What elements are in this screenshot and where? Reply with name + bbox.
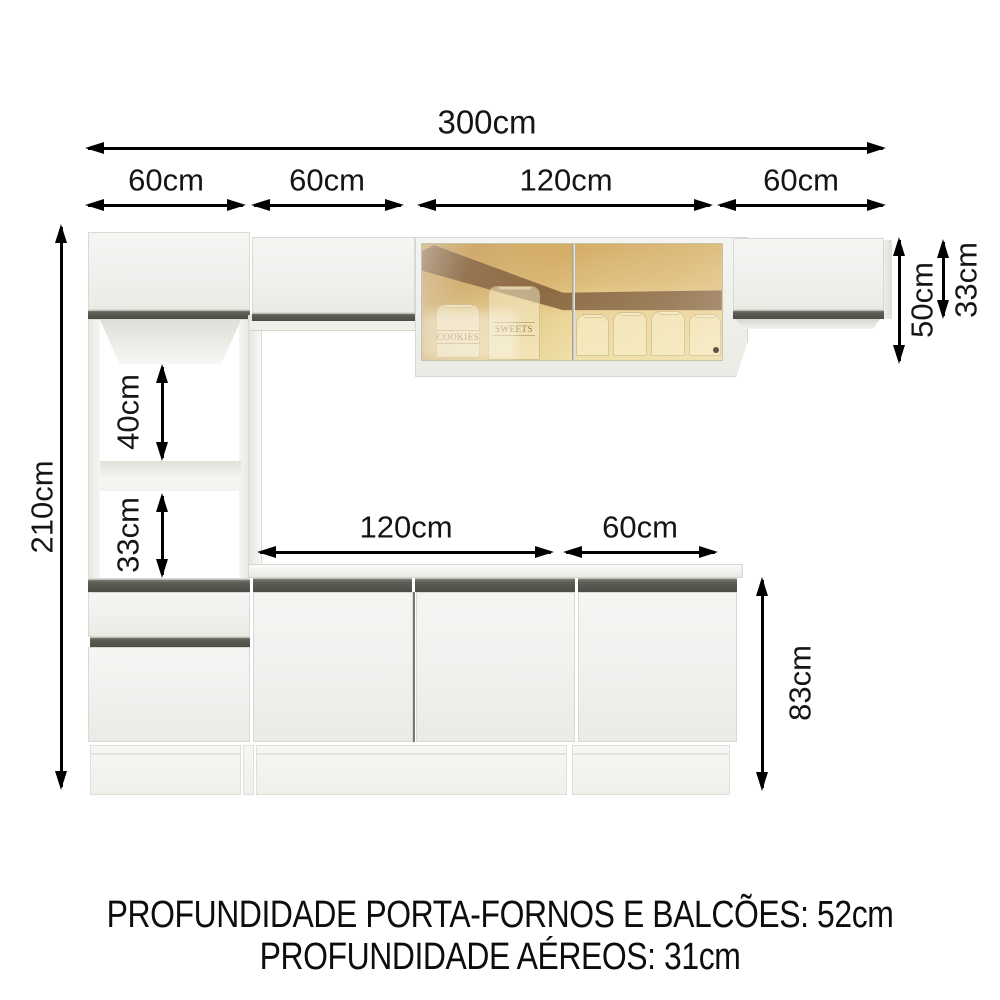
dim-label-base-height: 83cm bbox=[785, 645, 816, 721]
aerial-cabinet-2-door bbox=[252, 237, 415, 313]
dim-label-niche-upper: 40cm bbox=[112, 370, 145, 454]
base-door-seam bbox=[413, 592, 415, 742]
niche-side-panel bbox=[248, 315, 262, 578]
base-cabinet-strip-1 bbox=[253, 578, 412, 592]
dim-arrow-niche-lower bbox=[154, 493, 170, 578]
dim-label-top-seg-4: 60cm bbox=[763, 165, 839, 196]
base-cabinet-door-2 bbox=[416, 592, 575, 742]
tall-cabinet-bottom-door bbox=[88, 647, 250, 742]
dim-arrow-top-seg-2 bbox=[251, 197, 404, 213]
dim-arrow-base-height bbox=[754, 577, 770, 791]
dim-label-counter-seg-1: 120cm bbox=[359, 512, 452, 543]
base-cabinet-door-1 bbox=[253, 592, 413, 742]
tall-cabinet-kick-plate bbox=[90, 745, 241, 795]
glass-door-knob bbox=[713, 347, 719, 353]
dim-arrow-niche-upper bbox=[154, 364, 170, 461]
kitchen-dimension-diagram: COOKIES SWEETS 300cm 6 bbox=[0, 0, 1000, 1000]
dim-label-total-width: 300cm bbox=[437, 106, 536, 139]
dim-label-top-seg-3: 120cm bbox=[519, 165, 612, 196]
dim-arrow-total-width bbox=[85, 140, 886, 156]
glass-door-divider bbox=[572, 244, 575, 360]
dim-arrow-top-seg-4 bbox=[717, 197, 886, 213]
kick-corner-post bbox=[243, 745, 254, 795]
dim-arrow-counter-seg-1 bbox=[257, 544, 554, 560]
tall-cabinet-top-door bbox=[88, 232, 250, 310]
base-kick-plate-right bbox=[572, 745, 730, 795]
hutch-shelf bbox=[100, 461, 241, 491]
aerial-cabinet-3-bottom-shadow bbox=[736, 319, 880, 329]
dim-label-total-height: 210cm bbox=[27, 460, 58, 553]
aerial-cabinet-2-handle-strip bbox=[252, 313, 415, 321]
tall-cabinet-drawer bbox=[88, 592, 250, 637]
dim-label-top-seg-1: 60cm bbox=[128, 165, 204, 196]
base-cabinet-strip-2 bbox=[415, 578, 575, 592]
countertop bbox=[248, 564, 743, 578]
dim-arrow-top-seg-1 bbox=[85, 197, 246, 213]
aerial-cabinet-2-bottom-board bbox=[250, 321, 417, 331]
dim-label-counter-seg-2: 60cm bbox=[602, 512, 678, 543]
base-cabinet-strip-3 bbox=[578, 578, 737, 592]
glass-cabinet-doors: COOKIES SWEETS bbox=[421, 243, 723, 361]
tall-cabinet-counter-strip bbox=[88, 579, 250, 592]
base-cabinet-door-3 bbox=[578, 592, 737, 742]
tall-cabinet-drawer-handle-strip bbox=[90, 637, 250, 647]
dim-label-aerial-height: 33cm bbox=[951, 242, 982, 318]
dim-label-niche-lower: 33cm bbox=[112, 493, 145, 577]
base-kick-plate-left bbox=[256, 745, 567, 795]
dim-arrow-top-seg-3 bbox=[417, 197, 713, 213]
footer-depth-ovens-counters: PROFUNDIDADE PORTA-FORNOS E BALCÕES: 52c… bbox=[107, 896, 894, 934]
hutch-left-wall bbox=[89, 320, 100, 578]
aerial-cabinet-3-handle-strip bbox=[733, 310, 884, 319]
tall-cabinet-top-handle-strip bbox=[88, 310, 250, 319]
hutch-ceiling bbox=[100, 320, 241, 364]
aerial-cabinet-3-door bbox=[733, 238, 884, 310]
footer-depth-aerials: PROFUNDIDADE AÉREOS: 31cm bbox=[260, 938, 741, 976]
dim-arrow-counter-seg-2 bbox=[563, 544, 718, 560]
dim-label-top-seg-2: 60cm bbox=[289, 165, 365, 196]
dim-label-glass-height: 50cm bbox=[907, 262, 938, 338]
